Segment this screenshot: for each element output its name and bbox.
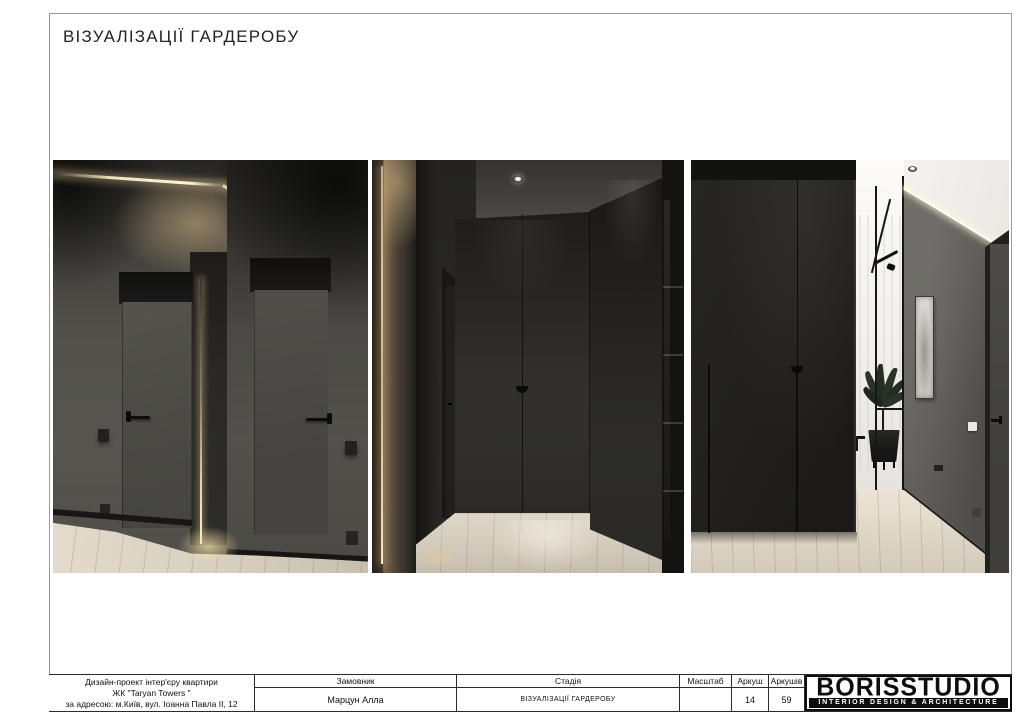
door-1 xyxy=(122,302,192,528)
wardrobe-edge xyxy=(589,212,590,514)
door-handle-hub xyxy=(999,416,1002,424)
wardrobe-groove-handle xyxy=(708,365,710,533)
wall-switch-right xyxy=(345,441,357,455)
sheet-value: 14 xyxy=(732,688,768,711)
door-2-handle xyxy=(306,418,329,421)
stage-label: Стадія xyxy=(457,675,679,688)
sheets-value: 59 xyxy=(769,688,804,711)
project-line-2: ЖК "Taryan Towers " xyxy=(49,688,254,699)
page-title: ВІЗУАЛІЗАЦІЇ ГАРДЕРОБУ xyxy=(63,27,299,47)
wardrobe-sheen xyxy=(472,220,572,300)
project-line-3: за адресою: м.Київ, вул. Іоанна Павла II… xyxy=(49,699,254,710)
floor-light-pool xyxy=(418,548,458,568)
studio-logo: BORISSTUDIO INTERIOR DESIGN & ARCHITECTU… xyxy=(805,675,1012,711)
wardrobe-door-seam xyxy=(797,180,798,532)
door-1-handle xyxy=(129,416,150,419)
door-1-header xyxy=(119,272,193,304)
sheet-number-cell: Аркуш 14 xyxy=(732,675,769,711)
presentation-sheet: ВІЗУАЛІЗАЦІЇ ГАРДЕРОБУ xyxy=(0,0,1024,724)
floor-highlight xyxy=(492,520,602,570)
coffee-table-leg xyxy=(856,439,858,451)
client-cell: Замовник Марцун Алла xyxy=(255,675,457,711)
wall-switch-left xyxy=(98,429,109,442)
door-2 xyxy=(254,290,328,534)
wall-socket-right xyxy=(346,531,358,545)
spotlight xyxy=(910,167,915,170)
spotlight xyxy=(515,177,521,181)
sheet-label: Аркуш xyxy=(732,675,768,688)
ceiling-soffit xyxy=(691,160,856,180)
wardrobe-floor-shadow xyxy=(691,532,857,544)
gray-door xyxy=(990,244,1009,573)
door-2-handle-hub xyxy=(327,413,332,424)
scale-value xyxy=(680,688,731,711)
wardrobe-side-sheen xyxy=(602,180,657,270)
pot-leg xyxy=(883,462,885,470)
client-label: Замовник xyxy=(255,675,456,688)
glass-partition-mullion xyxy=(875,408,904,410)
stage-cell: Стадія ВІЗУАЛІЗАЦІЇ ГАРДЕРОБУ xyxy=(457,675,680,711)
wall-switch xyxy=(968,422,977,431)
black-wardrobe xyxy=(691,180,856,532)
niche-door-handle xyxy=(448,403,452,405)
scale-cell: Масштаб xyxy=(680,675,732,711)
glass-partition-frame xyxy=(902,176,904,538)
render-wardrobe-corridor xyxy=(372,160,684,573)
wall-socket xyxy=(972,508,981,517)
vertical-led-strip xyxy=(200,278,202,544)
scale-label: Масштаб xyxy=(680,675,731,688)
sheets-total-cell: Аркушів 59 xyxy=(769,675,805,711)
glass-reflection xyxy=(664,200,670,540)
door-2-header xyxy=(250,258,331,292)
floor-light-pool xyxy=(178,526,240,560)
project-line-1: Дизайн-проект інтер'єру квартири xyxy=(49,677,254,688)
studio-logo-name: BORISSTUDIO xyxy=(809,677,1008,699)
project-info-cell: Дизайн-проект інтер'єру квартири ЖК "Tar… xyxy=(49,675,255,711)
stage-value: ВІЗУАЛІЗАЦІЇ ГАРДЕРОБУ xyxy=(457,688,679,711)
pot-leg xyxy=(893,460,895,468)
title-block: Дизайн-проект інтер'єру квартири ЖК "Tar… xyxy=(49,674,1012,712)
sheets-label: Аркушів xyxy=(769,675,804,688)
wardrobe-handle-line xyxy=(796,373,797,532)
wall-artwork xyxy=(915,296,934,399)
plant-pot xyxy=(867,430,901,462)
wardrobe-edge-highlight xyxy=(854,180,856,532)
glass-partition-frame xyxy=(875,186,877,534)
client-value: Марцун Алла xyxy=(255,688,456,711)
render-wardrobe-hallway xyxy=(691,160,1009,573)
wall-socket xyxy=(934,465,943,471)
wall-column xyxy=(416,160,438,573)
render-entry-doors xyxy=(53,160,368,573)
